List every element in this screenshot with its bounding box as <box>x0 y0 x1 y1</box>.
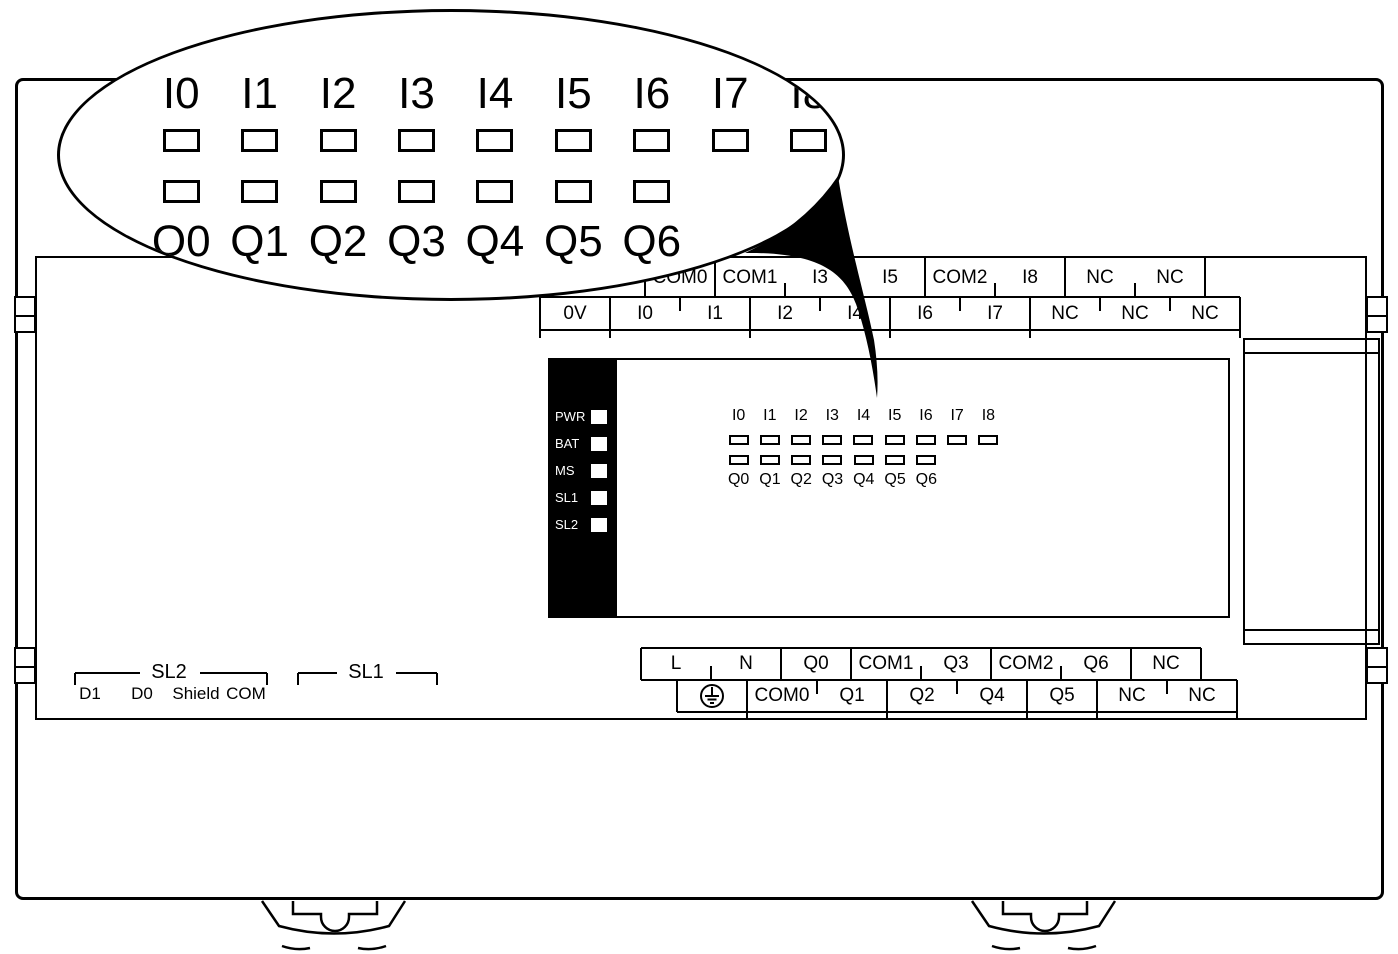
led-indicator <box>163 129 200 152</box>
magnifier-output-leds <box>142 180 691 203</box>
magnifier-output-label: Q3 <box>377 216 455 268</box>
magnifier-output-labels: Q0 Q1 Q2 Q3 Q4 Q5 Q6 <box>142 216 691 268</box>
magnifier-input-label: I8 <box>770 68 846 120</box>
led-indicator <box>241 180 278 203</box>
magnifier-output-label: Q4 <box>456 216 534 268</box>
magnifier-output-label: Q2 <box>299 216 377 268</box>
magnifier-input-label: I6 <box>613 68 691 120</box>
magnifier-input-label: I4 <box>456 68 534 120</box>
led-indicator <box>555 129 592 152</box>
led-indicator <box>163 180 200 203</box>
magnifier-callout: I0 I1 I2 I3 I4 I5 I6 I7 I8 <box>57 9 845 301</box>
magnifier-output-label: Q5 <box>534 216 612 268</box>
magnifier-input-labels: I0 I1 I2 I3 I4 I5 I6 I7 I8 <box>142 68 845 120</box>
magnifier-input-label: I5 <box>534 68 612 120</box>
magnifier-input-label: I7 <box>691 68 769 120</box>
led-indicator <box>633 129 670 152</box>
led-indicator <box>398 129 435 152</box>
side-tab <box>15 297 1387 683</box>
led-indicator <box>398 180 435 203</box>
magnifier-input-label: I3 <box>377 68 455 120</box>
magnifier-output-label: Q0 <box>142 216 220 268</box>
led-indicator <box>320 129 357 152</box>
led-indicator <box>555 180 592 203</box>
led-indicator <box>476 180 513 203</box>
led-indicator <box>712 129 749 152</box>
magnifier-output-label: Q6 <box>613 216 691 268</box>
led-indicator <box>476 129 513 152</box>
led-indicator <box>633 180 670 203</box>
magnifier-input-label: I0 <box>142 68 220 120</box>
magnifier-input-label: I1 <box>220 68 298 120</box>
magnifier-input-label: I2 <box>299 68 377 120</box>
plc-device-diagram: PWR BAT MS SL1 SL2 I0 I1 I2 I3 I4 I5 I6 … <box>0 0 1398 954</box>
led-indicator <box>241 129 278 152</box>
magnifier-output-label: Q1 <box>220 216 298 268</box>
led-indicator <box>790 129 827 152</box>
din-rail-clip <box>262 901 1115 949</box>
magnifier-input-leds <box>142 129 845 152</box>
led-indicator <box>320 180 357 203</box>
